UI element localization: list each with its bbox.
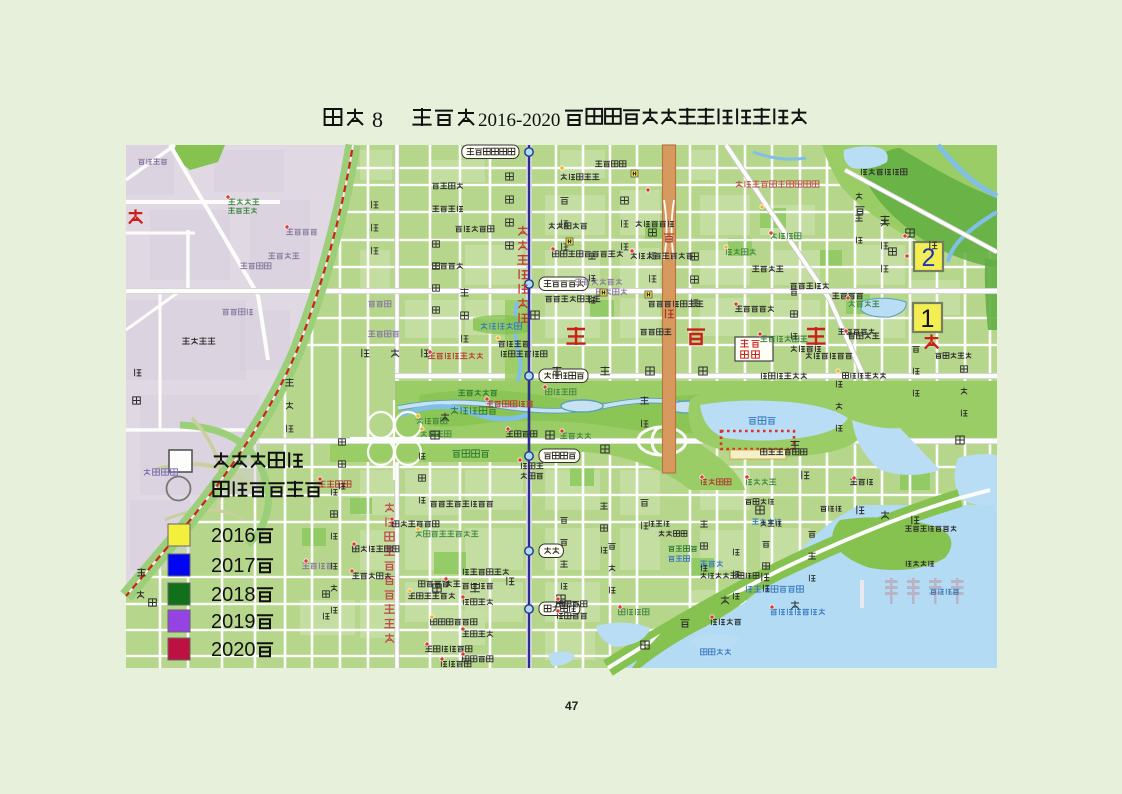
- svg-text:47: 47: [565, 699, 579, 713]
- svg-text:2016-2020: 2016-2020: [478, 110, 560, 131]
- svg-text:2019: 2019: [211, 611, 256, 633]
- svg-text:2020: 2020: [211, 639, 256, 661]
- svg-text:2016: 2016: [211, 525, 256, 547]
- svg-text:8: 8: [372, 107, 383, 132]
- svg-text:2: 2: [922, 244, 936, 272]
- svg-text:2018: 2018: [211, 584, 256, 606]
- svg-text:2017: 2017: [211, 555, 256, 577]
- svg-text:1: 1: [921, 305, 935, 333]
